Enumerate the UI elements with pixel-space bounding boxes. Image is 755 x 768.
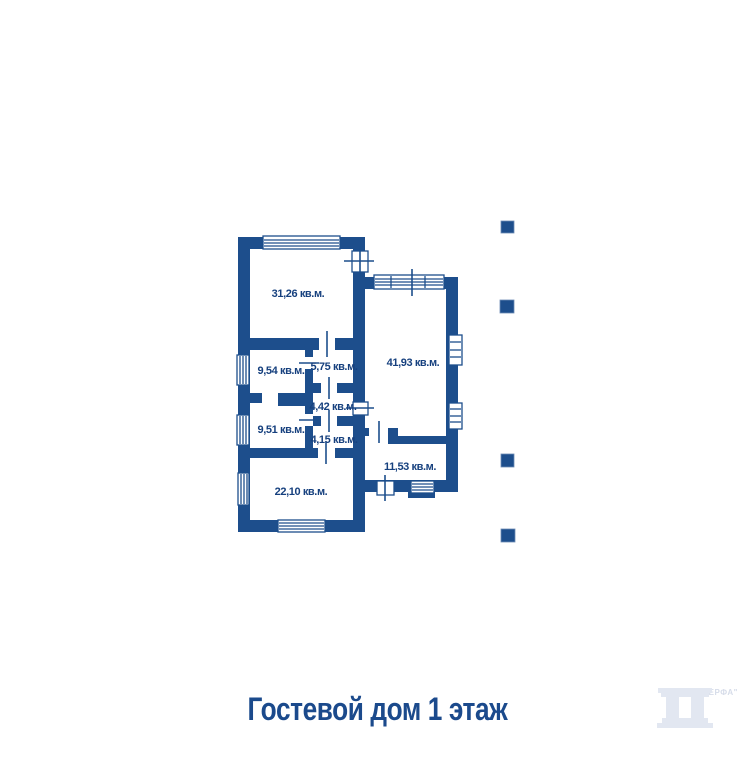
- floor-plan-canvas: 31,26 кв.м. 41,93 кв.м. 9,54 кв.м. 5,75 …: [0, 0, 755, 768]
- divider-stub-left: [365, 428, 369, 436]
- gallery-bullet-3[interactable]: [501, 454, 514, 467]
- label-9-51: 9,51 кв.м.: [258, 424, 305, 436]
- label-4-15: 4,15 кв.м.: [311, 434, 358, 446]
- label-living: 31,26 кв.м.: [272, 288, 325, 300]
- window-right-41-93-upper: [449, 335, 462, 365]
- label-11-53: 11,53 кв.м.: [384, 461, 436, 473]
- label-4-42: 4,42 кв.м.: [310, 401, 357, 413]
- page-title-text: Гостевой дом 1 этаж: [248, 691, 508, 728]
- label-22-10: 22,10 кв.м.: [275, 486, 328, 498]
- window-left-9-54: [237, 355, 249, 385]
- divider-chunk-9: [278, 393, 305, 406]
- watermark: Фирма "ВЕРФА": [652, 687, 752, 697]
- gallery-bullet-4[interactable]: [501, 529, 515, 542]
- window-right-41-93-lower: [449, 403, 462, 429]
- window-top-living: [263, 236, 340, 249]
- label-5-75: 5,75 кв.м.: [311, 361, 358, 373]
- window-bottom-22-10: [278, 520, 325, 532]
- page-title: Гостевой дом 1 этаж: [0, 691, 755, 728]
- label-41-93: 41,93 кв.м.: [387, 357, 440, 369]
- columns-logo-icon: [652, 687, 718, 733]
- door-9-54-to-9-51: [262, 393, 278, 403]
- divider-41-11: [390, 436, 446, 444]
- label-9-54: 9,54 кв.м.: [258, 365, 305, 377]
- gallery-bullet-1[interactable]: [501, 221, 514, 233]
- gallery-bullet-2[interactable]: [500, 300, 514, 313]
- window-bottom-11-53: [411, 481, 434, 493]
- window-left-9-51: [237, 415, 249, 445]
- window-left-22-10: [238, 473, 249, 505]
- gallery-bullets: [500, 221, 515, 542]
